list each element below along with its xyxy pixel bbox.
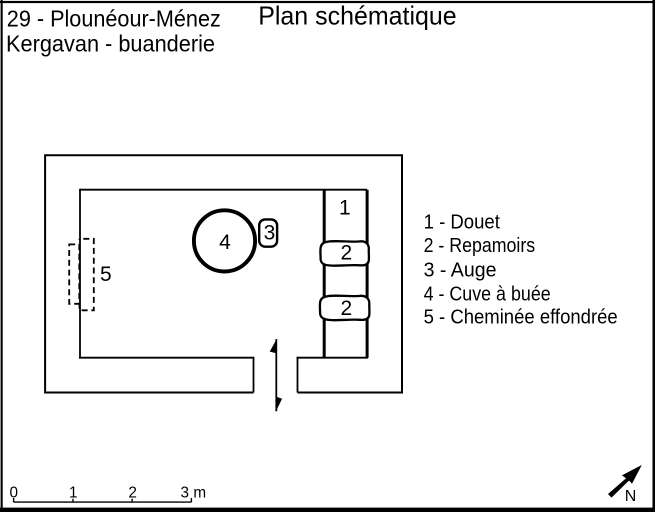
svg-text:4: 4 [219,231,231,254]
svg-text:Plan schématique: Plan schématique [258,3,457,31]
svg-text:1 - Douet: 1 - Douet [424,211,501,234]
svg-text:5: 5 [100,263,112,286]
svg-text:29 - Plounéour-Ménez: 29 - Plounéour-Ménez [7,5,221,31]
svg-text:3: 3 [264,222,276,245]
svg-text:2: 2 [128,484,137,501]
svg-text:2: 2 [341,297,353,320]
svg-text:N: N [625,488,637,505]
svg-text:2: 2 [340,242,352,265]
svg-text:2 - Repamoirs: 2 - Repamoirs [424,234,536,257]
svg-text:Kergavan - buanderie: Kergavan - buanderie [6,30,215,56]
svg-text:1: 1 [339,197,351,220]
svg-text:3: 3 [180,484,189,501]
svg-text:3 - Auge: 3 - Auge [424,258,497,281]
svg-text:4 - Cuve à buée: 4 - Cuve à buée [424,282,551,305]
svg-text:1: 1 [69,484,78,501]
svg-text:5 - Cheminée effondrée: 5 - Cheminée effondrée [424,306,618,329]
svg-text:0: 0 [10,484,19,501]
svg-text:m: m [193,484,206,501]
